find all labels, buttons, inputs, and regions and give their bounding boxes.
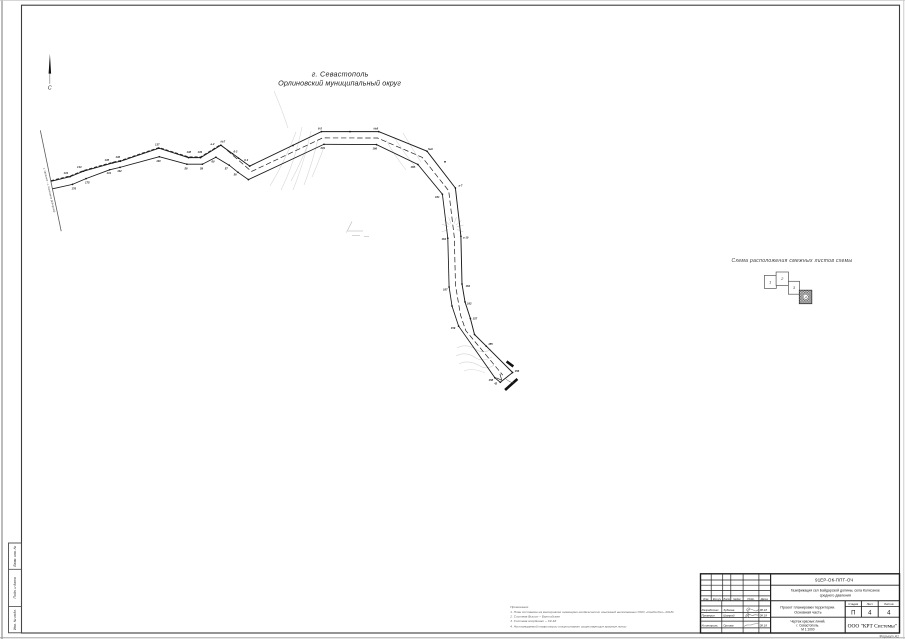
svg-text:№док: №док <box>733 597 741 601</box>
svg-text:М 1:1000: М 1:1000 <box>801 628 815 632</box>
svg-text:2. Система Высот – Балтийск: 2. Система Высот – Балтийская <box>509 615 560 619</box>
svg-text:3. Система координат – СК-6: 3. Система координат – СК-63 <box>510 619 556 623</box>
svg-text:ООО "КРТ Системы": ООО "КРТ Системы" <box>848 623 897 629</box>
svg-text:Дата: Дата <box>760 597 769 601</box>
svg-text:г. Севастополь: г. Севастополь <box>312 69 369 78</box>
svg-text:Газификация сел Байдарской дол: Газификация сел Байдарской долины, села … <box>791 588 880 592</box>
svg-text:№7: №7 <box>221 140 226 144</box>
svg-text:165: 165 <box>411 165 416 169</box>
svg-text:08.18: 08.18 <box>760 623 768 627</box>
svg-text:Основная часть: Основная часть <box>794 610 821 614</box>
svg-text:4. На планируемой территории: 4. На планируемой территории отсутствуют… <box>510 624 626 628</box>
svg-text:161: 161 <box>435 195 440 199</box>
svg-text:П: П <box>851 611 855 617</box>
svg-text:Разработал: Разработал <box>702 608 719 612</box>
svg-text:132: 132 <box>117 169 122 173</box>
svg-text:139: 139 <box>198 150 203 154</box>
svg-text:175: 175 <box>85 180 90 184</box>
svg-text:Н.контроль: Н.контроль <box>702 623 719 627</box>
svg-text:среднего давления: среднего давления <box>820 593 851 597</box>
svg-text:Подп.: Подп. <box>747 597 754 601</box>
svg-text:а-7: а-7 <box>459 183 463 187</box>
svg-text:137: 137 <box>155 143 160 147</box>
svg-text:131: 131 <box>107 171 112 175</box>
svg-text:№9: №9 <box>428 147 433 151</box>
svg-text:57: 57 <box>225 166 228 170</box>
svg-text:6-5: 6-5 <box>318 127 322 131</box>
svg-text:91ЕР-ОК-ППТ-ОЧ: 91ЕР-ОК-ППТ-ОЧ <box>815 577 853 582</box>
svg-text:130: 130 <box>156 159 161 163</box>
svg-text:Листов: Листов <box>884 602 894 606</box>
svg-text:133: 133 <box>64 171 69 175</box>
svg-text:Схема расположения смежных лис: Схема расположения смежных листов схемы <box>732 258 853 264</box>
svg-text:Шамрай: Шамрай <box>723 613 734 617</box>
svg-text:а-2: а-2 <box>211 142 215 146</box>
svg-text:Взам. инв. №: Взам. инв. № <box>13 545 17 566</box>
svg-text:59: 59 <box>200 167 203 171</box>
svg-text:а-10: а-10 <box>463 236 469 240</box>
svg-text:Стадия: Стадия <box>848 602 858 606</box>
svg-text:156: 156 <box>515 369 520 373</box>
svg-text:159: 159 <box>451 326 456 330</box>
svg-text:Подп. и дата: Подп. и дата <box>13 577 17 598</box>
svg-text:С: С <box>48 86 52 92</box>
svg-text:138: 138 <box>187 150 192 154</box>
svg-text:Изм: Изм <box>703 597 708 601</box>
svg-text:Кол.уч: Кол.уч <box>713 597 722 601</box>
svg-text:135: 135 <box>105 158 110 162</box>
svg-text:42: 42 <box>493 382 497 386</box>
svg-text:Инв. № подл.: Инв. № подл. <box>13 609 17 630</box>
svg-text:163: 163 <box>442 237 447 241</box>
svg-text:157: 157 <box>473 316 478 320</box>
svg-text:201: 201 <box>320 146 326 150</box>
svg-text:166: 166 <box>373 146 378 150</box>
svg-text:1: 1 <box>769 280 771 285</box>
svg-text:Примечания:: Примечания: <box>510 605 529 609</box>
svg-text:134: 134 <box>77 165 82 169</box>
svg-text:Формат А1: Формат А1 <box>879 634 899 638</box>
svg-text:4: 4 <box>805 295 807 299</box>
svg-text:136: 136 <box>116 155 121 159</box>
svg-text:56: 56 <box>234 173 237 177</box>
svg-text:176: 176 <box>72 187 77 191</box>
svg-text:60: 60 <box>212 160 215 164</box>
svg-text:6-2: 6-2 <box>234 150 238 154</box>
svg-text:08.18: 08.18 <box>760 613 768 617</box>
svg-text:№8: №8 <box>374 127 379 131</box>
svg-text:167: 167 <box>443 287 448 291</box>
svg-text:Лист: Лист <box>867 602 874 606</box>
svg-text:1. План составлен на материал: 1. План составлен на материалах инженерн… <box>510 610 674 614</box>
svg-text:08.18: 08.18 <box>760 608 768 612</box>
svg-text:6-3: 6-3 <box>244 158 248 162</box>
svg-text:Зубкова: Зубкова <box>723 608 734 612</box>
svg-text:Проект планировки территории.: Проект планировки территории. <box>780 606 835 610</box>
svg-text:58: 58 <box>185 167 188 171</box>
svg-text:Лист: Лист <box>722 597 731 601</box>
svg-text:Орлиновский муниципальный окру: Орлиновский муниципальный округ <box>278 78 401 87</box>
svg-text:162: 162 <box>467 302 472 306</box>
svg-text:155: 155 <box>488 342 493 346</box>
svg-text:Орлова: Орлова <box>723 623 733 627</box>
svg-text:158: 158 <box>489 378 494 382</box>
svg-text:Проверил: Проверил <box>702 613 716 617</box>
svg-text:164: 164 <box>466 284 471 288</box>
